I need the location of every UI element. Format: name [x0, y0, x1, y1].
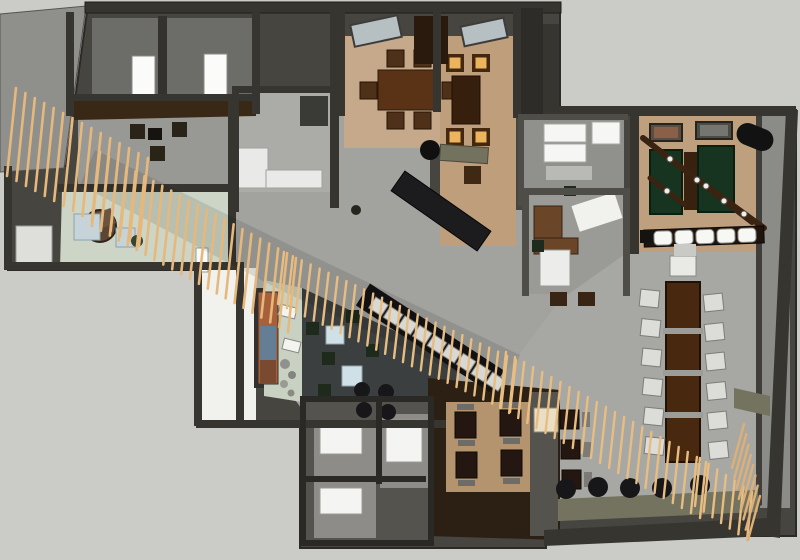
wall-vertical — [433, 10, 441, 112]
hall-stool — [351, 205, 361, 215]
kitchen-counter — [238, 148, 268, 188]
communal-chairs-right — [705, 352, 726, 371]
landscape-rock — [280, 359, 290, 369]
communal-chairs-left — [643, 407, 664, 426]
wall-lounge-bottom — [196, 420, 446, 428]
storage-shelf — [544, 144, 586, 162]
brick-dining-tables — [456, 452, 477, 478]
lounge-pouf — [356, 402, 372, 418]
dining1-chair — [387, 50, 404, 67]
restroom-wall — [376, 400, 382, 484]
communal-chairs-left — [640, 319, 661, 338]
storage-wall — [518, 114, 524, 206]
beam-light — [667, 156, 673, 162]
brick-dining-chairs — [503, 438, 520, 444]
office-sofa — [540, 250, 570, 286]
restroom-wall — [300, 540, 434, 546]
communal-chairs-right — [707, 411, 728, 430]
corridor-white-floor — [200, 268, 256, 424]
landscape-rock — [288, 371, 296, 379]
wall-corridor — [194, 262, 202, 426]
server-chair — [464, 166, 481, 184]
floor-pouf — [556, 479, 576, 499]
wall-vertical — [330, 6, 339, 208]
office-green-chair — [532, 240, 544, 252]
communal-chairs-right — [704, 323, 725, 342]
lounge-pouf — [354, 382, 370, 398]
brick-dining-chairs — [458, 480, 475, 486]
brick-dining-chairs — [457, 404, 474, 410]
hall-side-table — [578, 292, 595, 306]
communal-head-chair — [670, 256, 696, 276]
dining1-chair — [360, 82, 377, 99]
bar-stools — [717, 229, 735, 244]
entry-blue-seat — [74, 214, 100, 240]
door-panel — [204, 54, 227, 96]
communal-table-band — [663, 328, 703, 334]
restroom-fixture-2 — [320, 488, 362, 514]
nook-chair — [150, 146, 165, 161]
upper-rooms-interior — [92, 18, 256, 106]
communal-chairs-left — [642, 378, 663, 397]
wall-vertical — [630, 110, 639, 254]
communal-chairs-left — [639, 289, 660, 308]
wall-side-chairs — [583, 442, 591, 457]
right-wall-frame — [756, 116, 762, 508]
wall-bump — [542, 24, 559, 116]
storage-shelf — [592, 122, 620, 144]
beam-light — [703, 183, 709, 189]
kitchen-equipment — [300, 96, 328, 126]
door-panel — [132, 56, 155, 98]
dining2-seat-cushion — [450, 58, 461, 69]
brick-dining-chairs — [503, 478, 520, 484]
floor-pouf — [588, 477, 608, 497]
wall-left-outer — [4, 166, 12, 270]
storage-counter — [546, 166, 592, 180]
dining2-seat-cushion — [450, 132, 461, 143]
nook-chair — [130, 124, 145, 139]
nook-table — [148, 128, 162, 140]
screenshot-root — [0, 0, 800, 560]
communal-head-chair-back — [674, 244, 696, 256]
beam-light — [664, 188, 670, 194]
landscape-rock — [288, 390, 295, 397]
brick-dining-tables — [501, 450, 522, 476]
mural-art-blue — [260, 326, 276, 360]
lounge-green-chair — [322, 352, 335, 365]
nook-chair — [172, 122, 187, 137]
beam-light — [694, 177, 700, 183]
office-wall — [623, 188, 630, 296]
communal-chairs-left — [644, 437, 665, 456]
landscape-rock — [280, 380, 288, 388]
vestibule-dark — [521, 8, 543, 114]
communal-chairs-right — [703, 293, 724, 312]
office-wall — [522, 188, 630, 195]
wall-picture-art — [700, 125, 728, 136]
wall-top — [85, 2, 561, 13]
bar-stools — [654, 231, 672, 246]
hall-side-table — [550, 292, 567, 306]
dining2-table — [452, 76, 480, 124]
restroom-wall — [306, 476, 426, 482]
server-counter — [440, 144, 489, 163]
bar-stools — [696, 229, 714, 244]
kitchen-wall — [232, 86, 338, 93]
communal-table-band — [663, 412, 703, 418]
lounge-green-chair — [306, 322, 319, 335]
lounge-pouf — [380, 404, 396, 420]
kitchen-counter — [266, 170, 322, 188]
dining1-chair — [387, 112, 404, 129]
restroom-wall — [300, 396, 306, 546]
bar-stools — [675, 230, 693, 245]
brick-dining-chairs — [458, 440, 475, 446]
entry-door-panel — [16, 226, 52, 264]
dining1-table — [378, 70, 440, 110]
communal-chairs-right — [706, 382, 727, 401]
bar-back-rack — [640, 230, 655, 243]
restroom-wall — [300, 396, 434, 402]
wall-picture-art — [654, 127, 678, 138]
bar-stools — [738, 228, 756, 243]
dining1-chair — [414, 112, 431, 129]
communal-chairs-left — [641, 348, 662, 367]
host-closet — [414, 16, 448, 64]
dining2-seat-cushion — [476, 58, 487, 69]
beam-light — [721, 198, 727, 204]
beam-light — [741, 211, 747, 217]
storage-wall — [518, 114, 628, 120]
brick-dining-tables — [455, 412, 476, 438]
mural-art-shade — [260, 360, 276, 384]
restroom-fixture-1 — [320, 426, 362, 454]
lounge-green-chair — [318, 384, 331, 397]
dining2-seat-cushion — [476, 132, 487, 143]
wall-vertical — [513, 6, 522, 118]
storage-shelf — [544, 124, 586, 142]
communal-table-band — [663, 370, 703, 376]
communal-chairs-right — [708, 441, 729, 460]
wall-leftwing-horizontal — [68, 94, 260, 101]
floorplan-svg — [0, 0, 800, 560]
host-round-table — [420, 140, 440, 160]
restroom-wall — [428, 396, 434, 546]
